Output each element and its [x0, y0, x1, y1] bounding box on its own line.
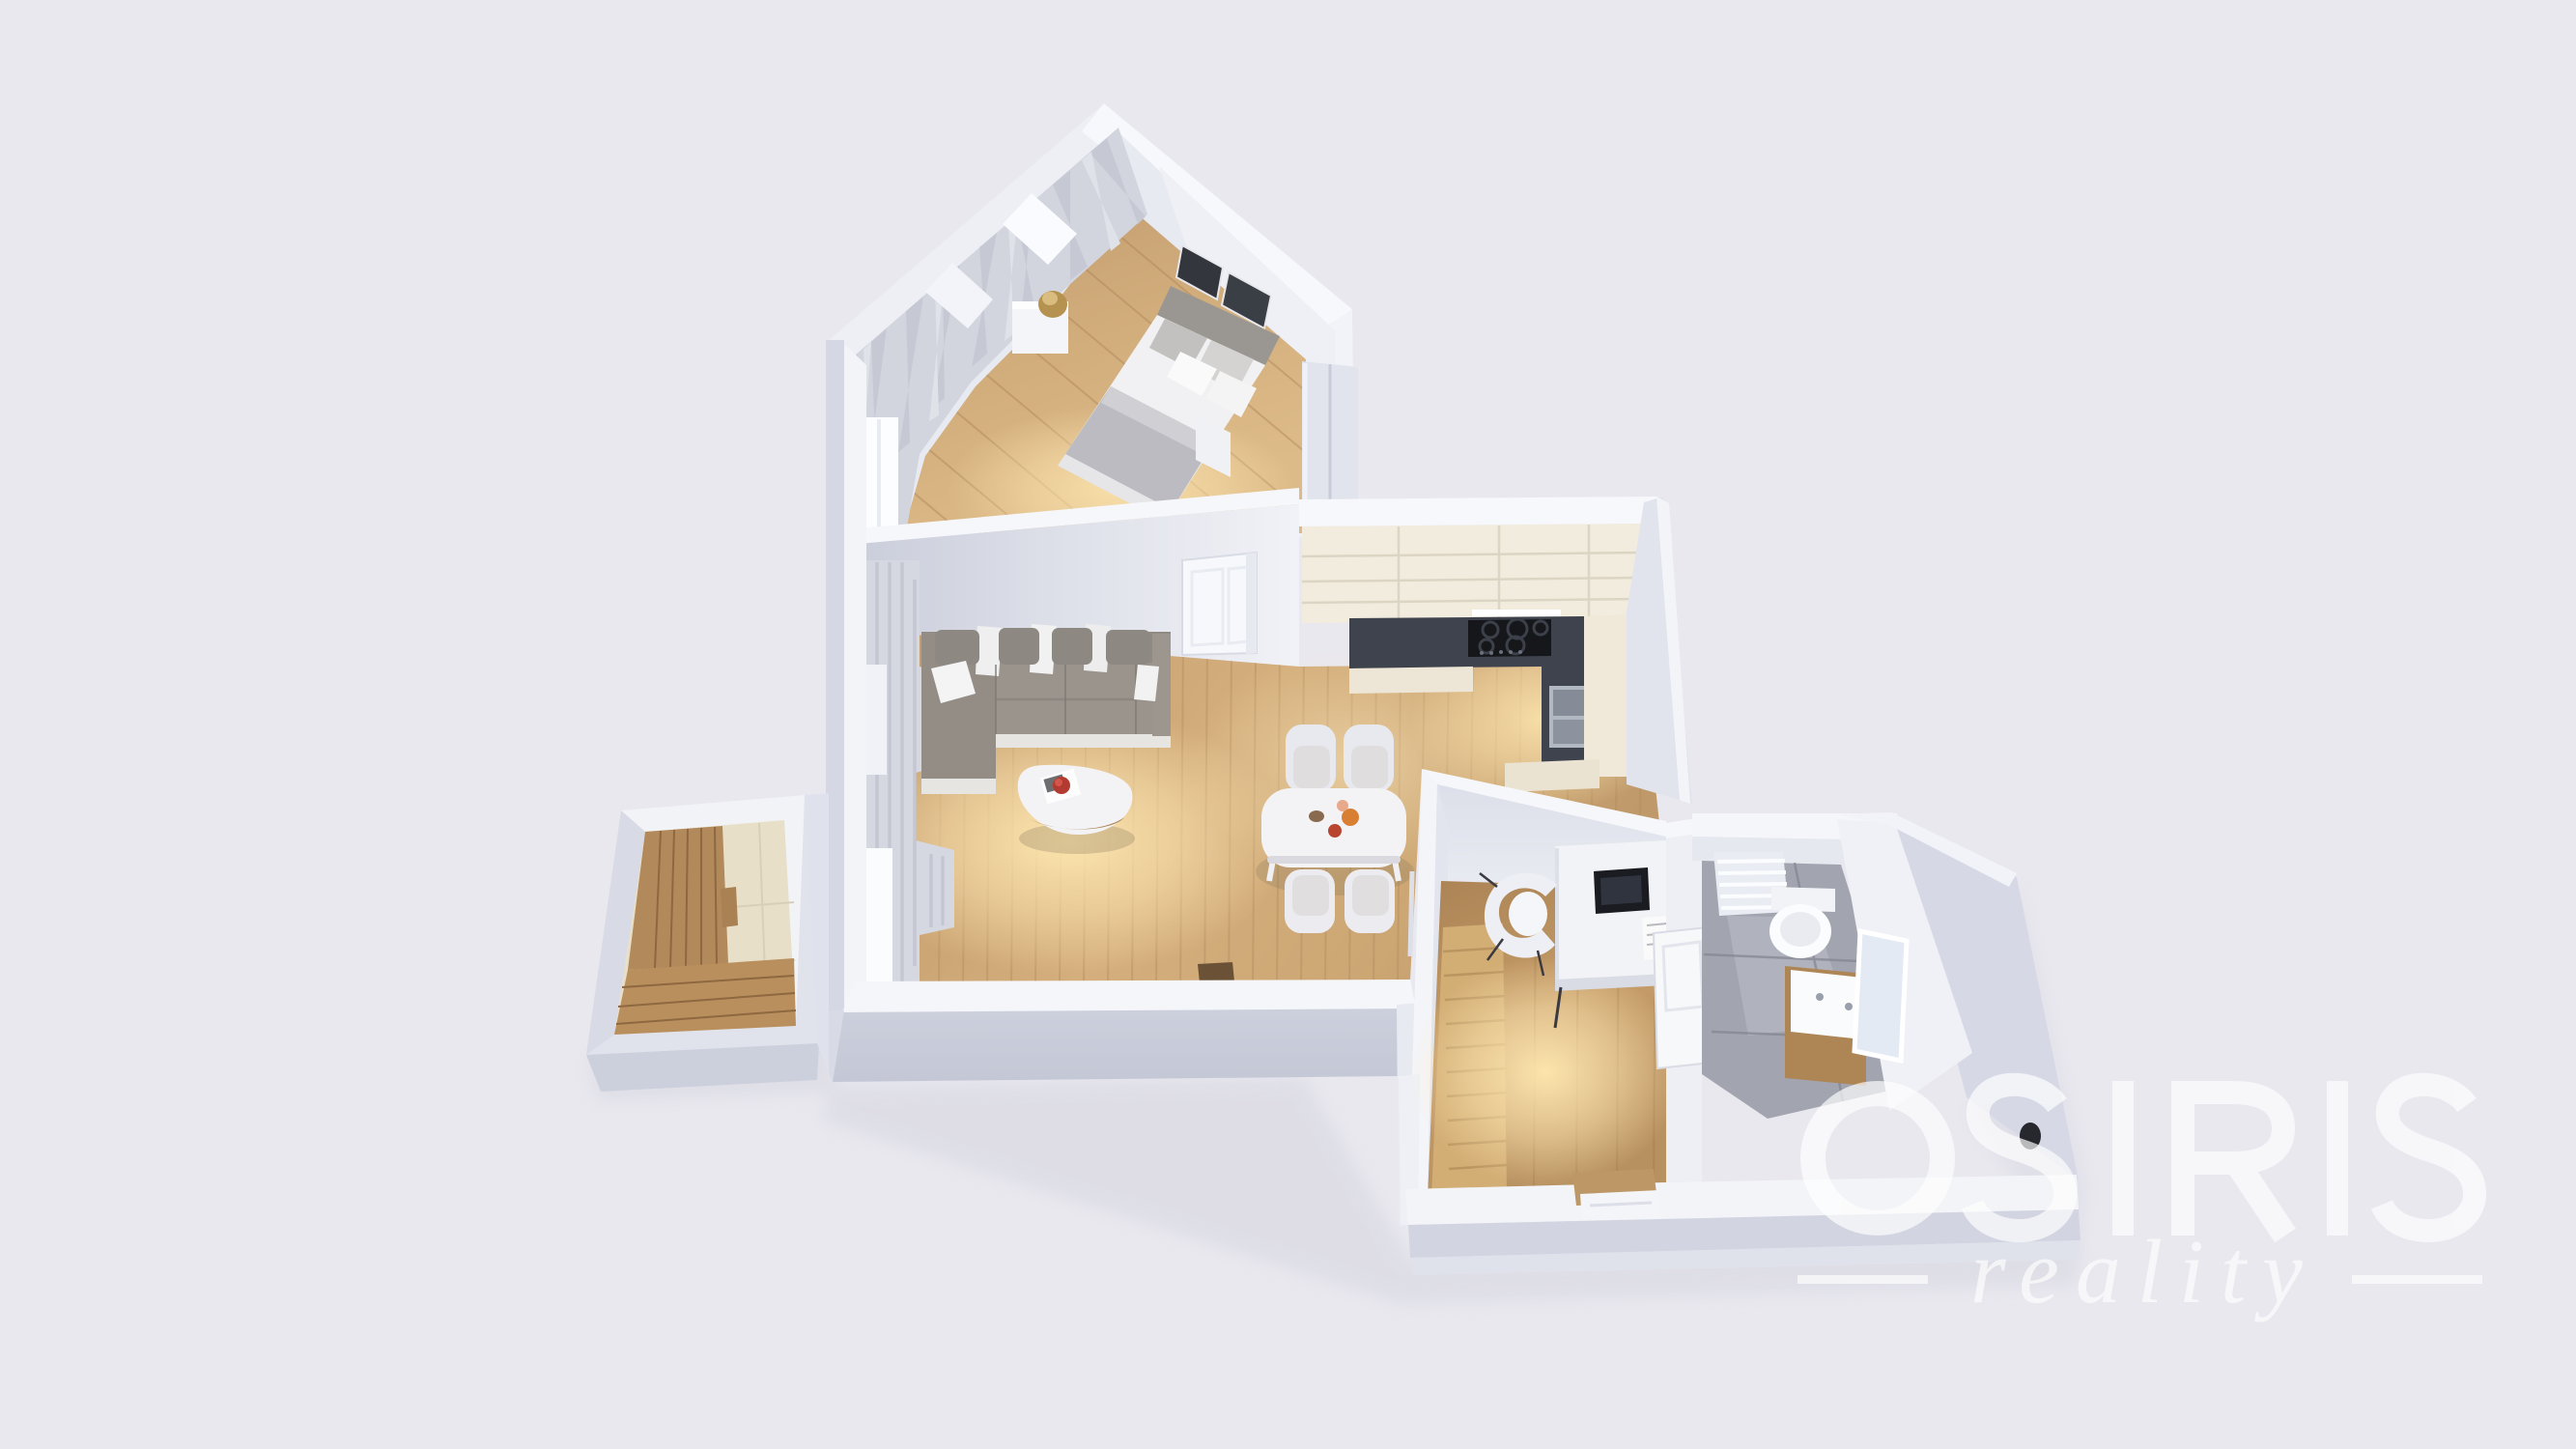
- svg-text:reality: reality: [1970, 1222, 2319, 1322]
